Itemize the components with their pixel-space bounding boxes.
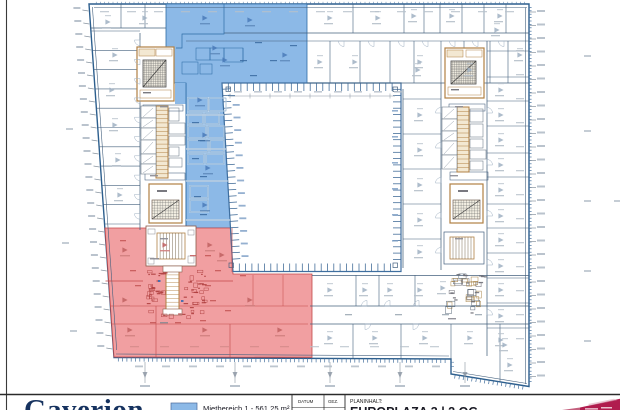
svg-text:Mietbereich 1 - 561,25 m²: Mietbereich 1 - 561,25 m² bbox=[203, 404, 290, 410]
svg-text:EUROPLAZA 3 | 2 OG: EUROPLAZA 3 | 2 OG bbox=[350, 405, 478, 410]
svg-text:DATUM: DATUM bbox=[298, 399, 314, 404]
svg-text:GEZ.: GEZ. bbox=[328, 399, 338, 404]
svg-text:Gaverion: Gaverion bbox=[24, 394, 144, 410]
